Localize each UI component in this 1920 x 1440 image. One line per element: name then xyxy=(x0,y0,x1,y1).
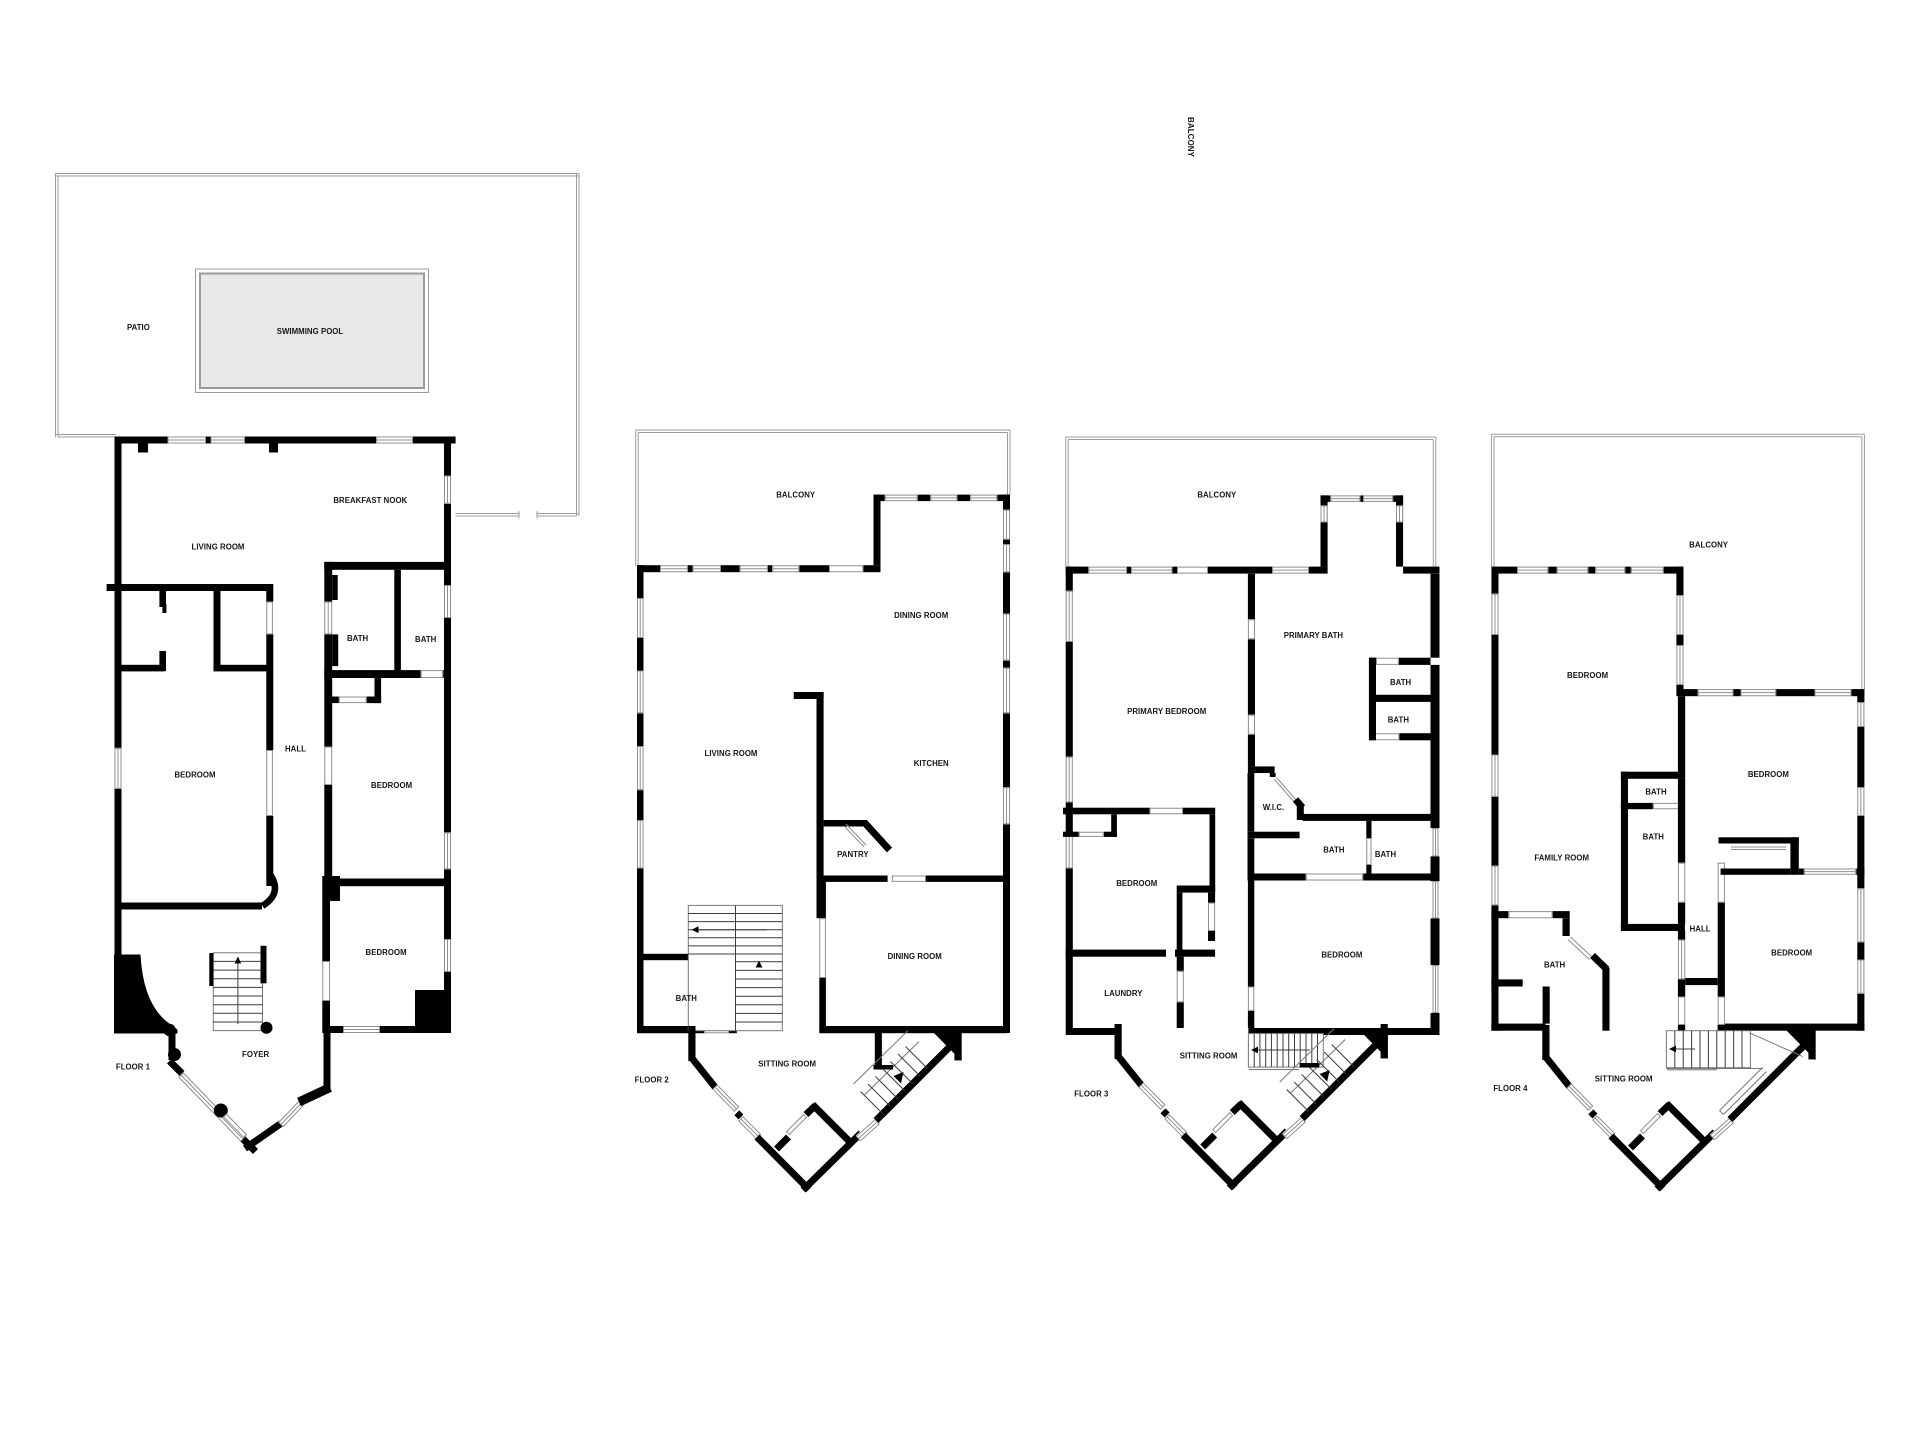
svg-text:LAUNDRY: LAUNDRY xyxy=(1104,989,1143,998)
svg-text:BREAKFAST NOOK: BREAKFAST NOOK xyxy=(333,496,407,505)
svg-text:LIVING ROOM: LIVING ROOM xyxy=(705,749,758,758)
svg-text:FLOOR 4: FLOOR 4 xyxy=(1493,1084,1528,1093)
svg-text:FAMILY ROOM: FAMILY ROOM xyxy=(1534,854,1589,863)
svg-text:BATH: BATH xyxy=(1375,850,1397,859)
svg-text:FLOOR 1: FLOOR 1 xyxy=(116,1063,151,1072)
svg-text:BEDROOM: BEDROOM xyxy=(1116,879,1157,888)
svg-text:BEDROOM: BEDROOM xyxy=(366,948,407,957)
svg-text:BATH: BATH xyxy=(1544,961,1566,970)
svg-text:FLOOR 2: FLOOR 2 xyxy=(635,1076,670,1085)
svg-text:BATH: BATH xyxy=(676,994,698,1003)
svg-text:BATH: BATH xyxy=(1643,833,1665,842)
svg-text:BEDROOM: BEDROOM xyxy=(174,770,215,779)
svg-text:LIVING ROOM: LIVING ROOM xyxy=(192,543,245,552)
svg-text:BATH: BATH xyxy=(1388,715,1410,724)
svg-text:BALCONY: BALCONY xyxy=(776,490,816,499)
svg-text:W.I.C.: W.I.C. xyxy=(1263,803,1285,812)
svg-text:DINING ROOM: DINING ROOM xyxy=(894,611,948,620)
svg-text:FOYER: FOYER xyxy=(242,1050,269,1059)
svg-text:SWIMMING POOL: SWIMMING POOL xyxy=(277,327,344,336)
svg-text:SITTING ROOM: SITTING ROOM xyxy=(758,1060,816,1069)
svg-text:PANTRY: PANTRY xyxy=(837,850,869,859)
svg-text:PATIO: PATIO xyxy=(127,323,150,332)
svg-text:BATH: BATH xyxy=(1323,845,1345,854)
svg-text:BALCONY: BALCONY xyxy=(1186,117,1195,158)
svg-text:HALL: HALL xyxy=(285,745,306,754)
svg-text:BALCONY: BALCONY xyxy=(1689,540,1729,549)
svg-text:BEDROOM: BEDROOM xyxy=(1321,950,1362,959)
svg-text:BATH: BATH xyxy=(1390,678,1412,687)
svg-text:KITCHEN: KITCHEN xyxy=(914,759,949,768)
svg-text:SITTING ROOM: SITTING ROOM xyxy=(1595,1075,1653,1084)
svg-text:PRIMARY BEDROOM: PRIMARY BEDROOM xyxy=(1127,707,1206,716)
svg-text:SITTING ROOM: SITTING ROOM xyxy=(1180,1052,1238,1061)
svg-text:PRIMARY BATH: PRIMARY BATH xyxy=(1284,631,1344,640)
svg-text:FLOOR 3: FLOOR 3 xyxy=(1074,1089,1109,1098)
svg-text:BEDROOM: BEDROOM xyxy=(371,781,412,790)
svg-text:BEDROOM: BEDROOM xyxy=(1771,948,1812,957)
svg-text:BATH: BATH xyxy=(415,635,437,644)
svg-text:BALCONY: BALCONY xyxy=(1197,490,1237,499)
svg-text:HALL: HALL xyxy=(1690,925,1711,934)
svg-text:BEDROOM: BEDROOM xyxy=(1748,770,1789,779)
svg-text:BATH: BATH xyxy=(347,634,369,643)
svg-text:BATH: BATH xyxy=(1645,788,1667,797)
svg-text:BEDROOM: BEDROOM xyxy=(1567,671,1608,680)
svg-text:DINING ROOM: DINING ROOM xyxy=(888,952,942,961)
